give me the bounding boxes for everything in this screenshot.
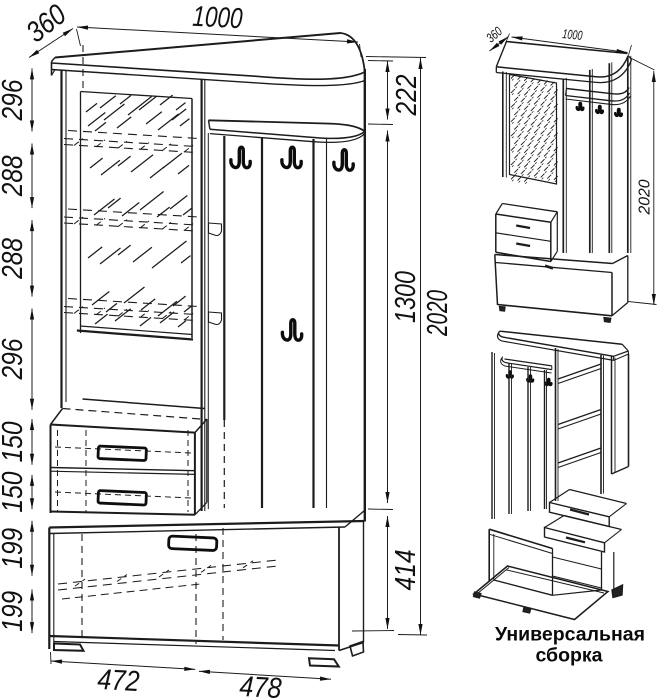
svg-text:2020: 2020 xyxy=(637,179,654,215)
svg-text:222: 222 xyxy=(391,75,423,117)
svg-text:1300: 1300 xyxy=(390,271,422,323)
svg-text:360: 360 xyxy=(20,0,72,49)
svg-text:288: 288 xyxy=(0,238,29,280)
svg-text:199: 199 xyxy=(0,528,29,569)
svg-text:296: 296 xyxy=(0,79,29,122)
svg-text:1000: 1000 xyxy=(562,26,584,43)
svg-text:414: 414 xyxy=(390,550,422,591)
svg-text:150: 150 xyxy=(0,472,29,513)
svg-text:478: 478 xyxy=(239,671,283,700)
svg-text:сборка: сборка xyxy=(535,645,602,667)
svg-text:Универсальная: Универсальная xyxy=(495,624,645,646)
svg-text:1000: 1000 xyxy=(192,1,244,36)
svg-text:2020: 2020 xyxy=(422,290,454,337)
svg-text:199: 199 xyxy=(0,591,29,632)
svg-text:296: 296 xyxy=(0,338,29,381)
svg-text:288: 288 xyxy=(0,155,29,197)
svg-text:150: 150 xyxy=(0,421,29,462)
svg-text:472: 472 xyxy=(97,664,141,698)
